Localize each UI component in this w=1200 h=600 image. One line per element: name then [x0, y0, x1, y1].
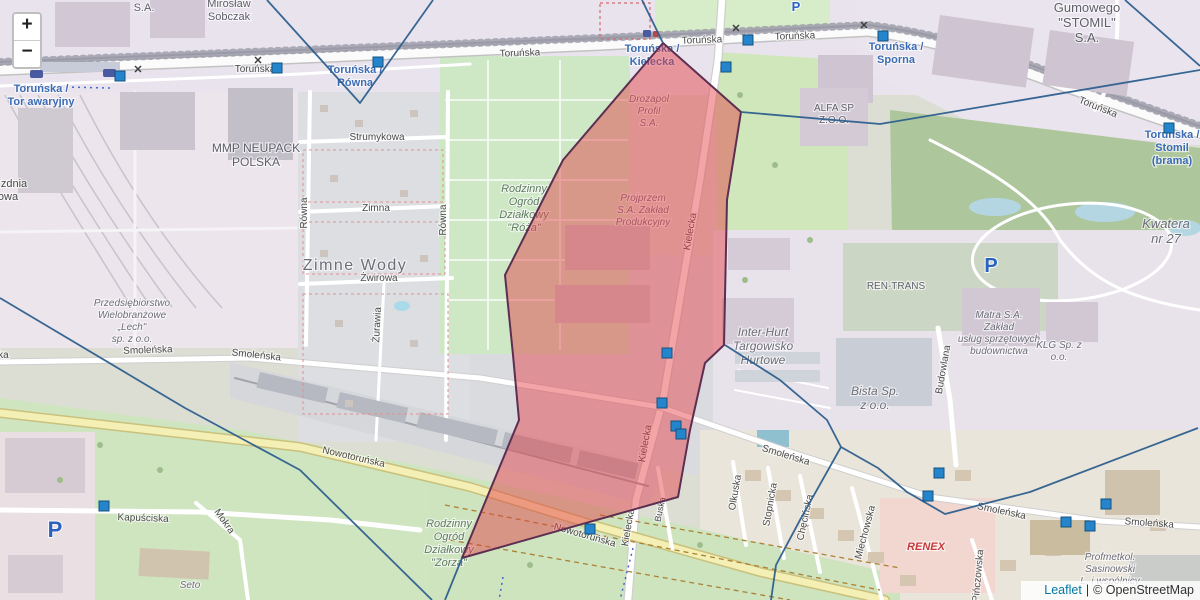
map-label: Toruńska [774, 30, 815, 42]
attribution-bar: Leaflet | © OpenStreetMap [1021, 581, 1200, 600]
map-label: S.A. [134, 2, 155, 14]
attribution-separator: | [1086, 583, 1089, 597]
map-label: Równa [299, 197, 310, 229]
map-marker[interactable] [743, 35, 753, 45]
map-label: REN-TRANS [867, 281, 926, 292]
map-label: Seto [180, 580, 201, 591]
ukraine-flag-icon [1027, 586, 1040, 595]
zoom-in-button[interactable]: + [14, 14, 40, 41]
level-crossing-icon: ✕ [253, 55, 262, 67]
map-label: MirosławSobczak [207, 0, 250, 23]
map-label: Smoleńska [123, 344, 173, 357]
map-marker[interactable] [115, 71, 125, 81]
parking-icon: P [792, 0, 801, 14]
map-label: Równa [438, 204, 449, 236]
map-marker[interactable] [585, 524, 595, 534]
map-label: RENEX [907, 541, 946, 553]
map-marker[interactable] [1101, 499, 1111, 509]
map-marker[interactable] [99, 501, 109, 511]
map-label: Strumykowa [349, 132, 404, 143]
map-label: Toruńska /Tor awaryjny [7, 83, 75, 108]
parking-icon: P [48, 517, 63, 542]
map-label: Zimna [362, 203, 390, 214]
level-crossing-icon: ✕ [859, 20, 868, 32]
osm-credit: © OpenStreetMap [1093, 583, 1194, 597]
map-marker[interactable] [272, 63, 282, 73]
map-tiles: Toruńska /Tor awaryjnyToruńska /RównaTor… [0, 0, 1200, 600]
map-marker[interactable] [923, 491, 933, 501]
map-label: Inter-HurtTargowiskoHurtowe [733, 325, 794, 367]
map-marker[interactable] [934, 468, 944, 478]
map-marker[interactable] [373, 57, 383, 67]
map-label: Toruńska [681, 34, 722, 46]
map-label: ALFA SPZ.O.O. [814, 103, 854, 126]
map-canvas[interactable]: Toruńska /Tor awaryjnyToruńska /RównaTor… [0, 0, 1200, 600]
leaflet-link[interactable]: Leaflet [1044, 583, 1082, 597]
level-crossing-icon: ✕ [133, 64, 142, 76]
zoom-control: + − [12, 12, 42, 69]
map-label: Kapuściska [117, 512, 169, 525]
map-marker[interactable] [1164, 123, 1174, 133]
map-label: owa [0, 191, 19, 203]
map-label: Zimne Wody [303, 257, 408, 274]
level-crossing-icon: ✕ [731, 23, 740, 35]
map-marker[interactable] [878, 31, 888, 41]
parking-icon: P [984, 255, 997, 277]
map-label: Smoleńska [0, 350, 9, 361]
map-marker[interactable] [676, 429, 686, 439]
zoom-out-button[interactable]: − [14, 41, 40, 67]
map-marker[interactable] [721, 62, 731, 72]
map-marker[interactable] [657, 398, 667, 408]
map-marker[interactable] [1085, 521, 1095, 531]
map-marker[interactable] [1061, 517, 1071, 527]
map-label: zdnia [1, 178, 28, 190]
map-marker[interactable] [662, 348, 672, 358]
map-label: Toruńska [499, 47, 540, 59]
